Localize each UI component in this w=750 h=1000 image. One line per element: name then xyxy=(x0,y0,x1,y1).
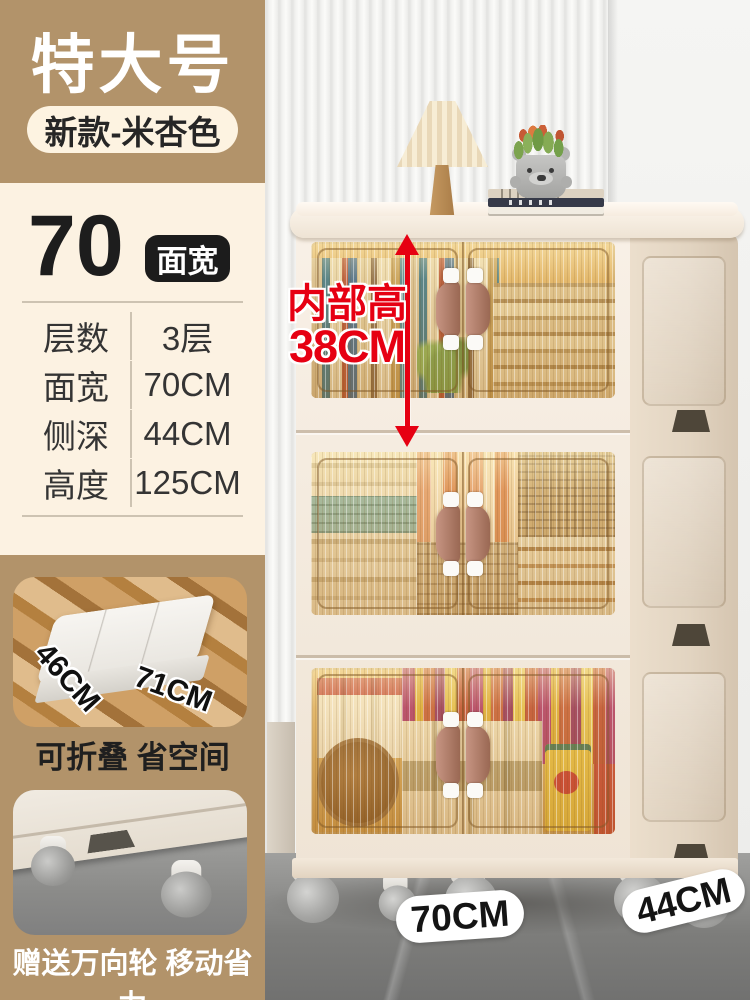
arrow-down-icon xyxy=(395,426,419,447)
spec-row-layers: 层数 3层 xyxy=(22,312,243,360)
spec-value: 70CM xyxy=(130,361,243,409)
bear-eye xyxy=(549,168,554,173)
inner-height-note: 内部高 38CM xyxy=(279,284,415,369)
width-unit-badge: 面宽 xyxy=(145,235,230,282)
info-panel: 特大号 新款-米杏色 70 面宽 层数 3层 面宽 70CM 侧深 44CM xyxy=(0,0,265,1000)
spec-row-height: 高度 125CM xyxy=(22,459,243,507)
bear-arm xyxy=(510,176,521,188)
succulent-plant xyxy=(513,125,570,160)
book xyxy=(488,198,604,207)
spec-value: 44CM xyxy=(130,410,243,458)
spec-row-width: 面宽 70CM xyxy=(22,361,243,409)
inner-height-text: 内部高 xyxy=(279,284,415,324)
tier2-handle xyxy=(431,492,495,576)
bear-eye xyxy=(527,168,532,173)
side-inset-panel xyxy=(642,672,726,822)
side-inset-panel xyxy=(642,256,726,406)
wheel-feature-photo xyxy=(13,790,247,935)
fold-feature-caption: 可折叠 省空间 xyxy=(0,732,265,777)
inner-height-value: 38CM xyxy=(279,324,415,369)
tier-seam xyxy=(296,655,630,658)
spec-label: 高度 xyxy=(22,459,130,507)
size-title: 特大号 xyxy=(0,14,265,106)
side-handle-notch xyxy=(672,624,710,646)
cabinet-corner-groove xyxy=(13,798,247,840)
spec-row-depth: 侧深 44CM xyxy=(22,410,243,458)
spec-table: 层数 3层 面宽 70CM 侧深 44CM 高度 125CM xyxy=(22,301,243,517)
tier1-handle xyxy=(431,268,495,350)
variant-badge: 新款-米杏色 xyxy=(27,106,238,153)
tier-seam xyxy=(296,430,630,433)
bear-arm xyxy=(561,176,572,188)
product-infographic: 特大号 新款-米杏色 70 面宽 层数 3层 面宽 70CM 侧深 44CM xyxy=(0,0,750,1000)
wheel-feature-caption: 赠送万向轮 移动省力 xyxy=(0,940,265,1000)
product-scene: 内部高 38CM 70CM 44CM xyxy=(265,0,750,1000)
arrow-up-icon xyxy=(395,234,419,255)
spec-label: 侧深 xyxy=(22,410,130,458)
spec-panel: 70 面宽 层数 3层 面宽 70CM 侧深 44CM 高度 125CM xyxy=(0,183,265,555)
width-number: 70 xyxy=(28,203,124,289)
front-width-pill: 70CM xyxy=(395,889,526,945)
spec-label: 层数 xyxy=(22,312,130,360)
bear-nose xyxy=(537,175,546,181)
spec-label: 面宽 xyxy=(22,361,130,409)
spec-value: 125CM xyxy=(130,459,243,507)
side-inset-panel xyxy=(642,456,726,608)
fold-feature-photo: 46CM 71CM xyxy=(13,577,247,727)
spec-value: 3层 xyxy=(130,312,243,360)
book xyxy=(488,207,604,216)
cabinet-base xyxy=(292,858,738,878)
cabinet-corner-slot xyxy=(85,829,135,854)
tier3-handle xyxy=(431,712,495,798)
side-handle-notch xyxy=(672,410,710,432)
